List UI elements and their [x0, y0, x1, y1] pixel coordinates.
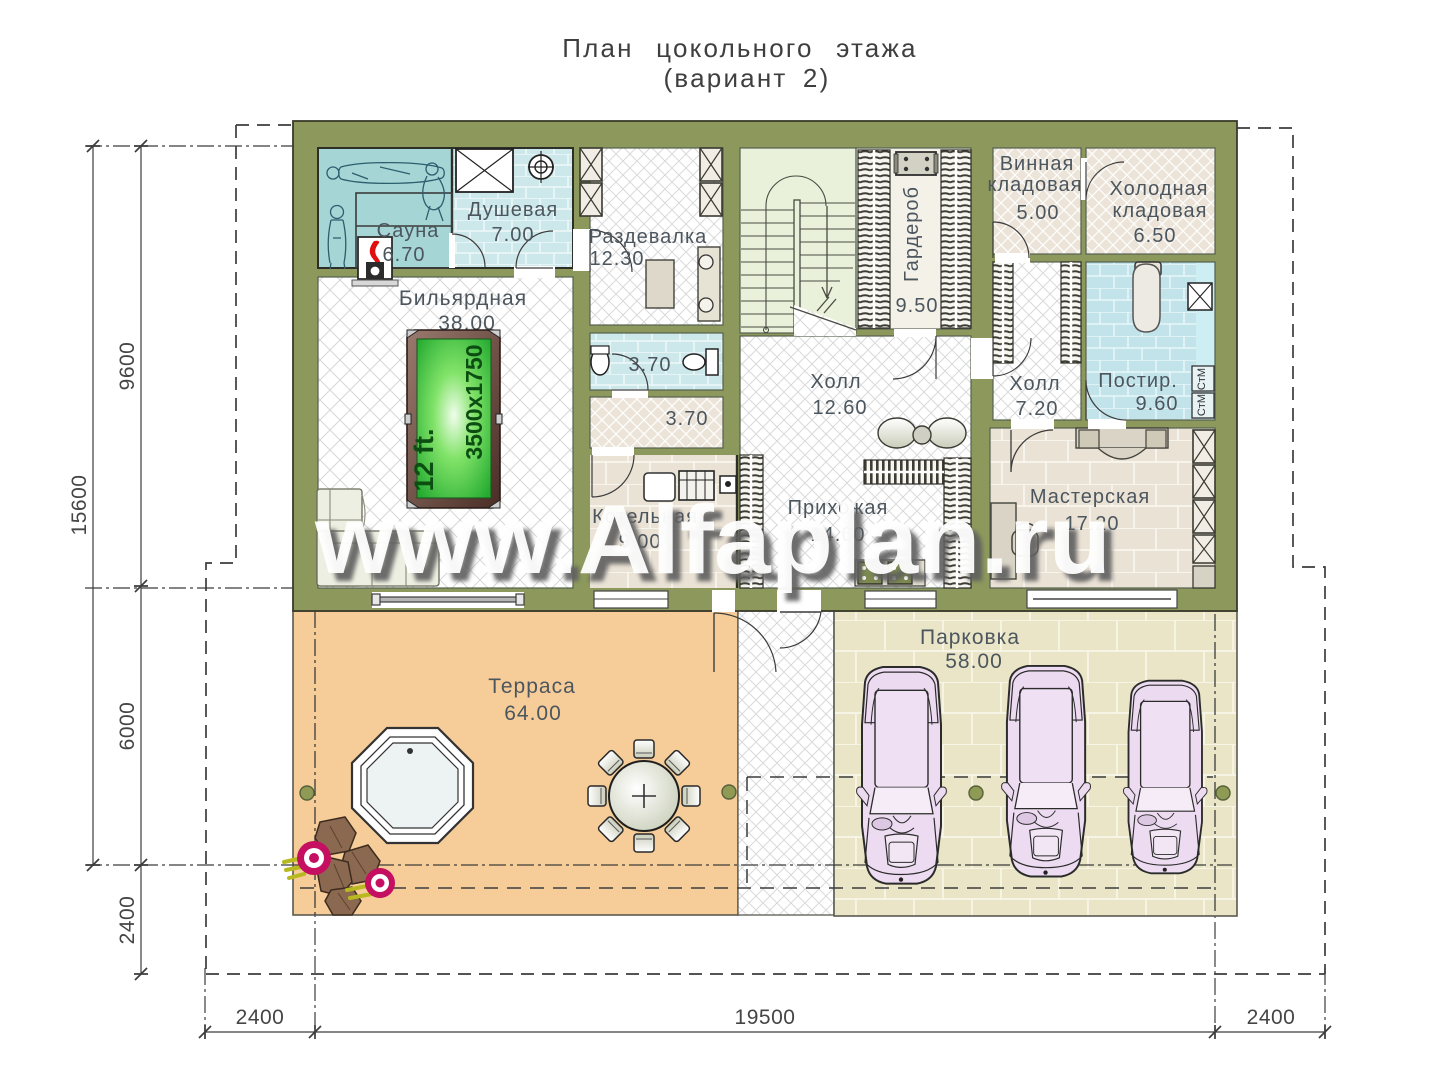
svg-text:12.60: 12.60 [812, 397, 867, 419]
svg-text:СтМ: СтМ [1196, 368, 1208, 390]
svg-text:7.00: 7.00 [492, 224, 535, 246]
svg-text:6000: 6000 [116, 702, 139, 751]
svg-text:Бильярдная: Бильярдная [399, 287, 527, 310]
svg-text:3.70: 3.70 [629, 354, 672, 376]
svg-text:9.60: 9.60 [1136, 393, 1179, 415]
svg-text:Холл: Холл [810, 371, 861, 393]
svg-text:3.70: 3.70 [666, 408, 709, 430]
svg-text:2400: 2400 [236, 1006, 285, 1029]
svg-text:6.50: 6.50 [1134, 225, 1177, 247]
svg-text:СтМ: СтМ [1196, 394, 1208, 416]
svg-text:План цокольного этажа: План цокольного этажа [562, 33, 917, 63]
svg-text:Сауна: Сауна [377, 220, 440, 242]
svg-text:9600: 9600 [116, 342, 139, 391]
svg-text:Холодная: Холодная [1109, 178, 1208, 200]
svg-text:64.00: 64.00 [504, 702, 562, 725]
svg-text:Винная: Винная [1000, 153, 1075, 175]
svg-text:Раздевалка: Раздевалка [589, 226, 708, 248]
svg-text:3500x1750: 3500x1750 [461, 344, 487, 459]
svg-text:58.00: 58.00 [945, 650, 1003, 673]
svg-text:www.Alfaplan.ru: www.Alfaplan.ru [314, 485, 1111, 594]
svg-text:9.50: 9.50 [896, 295, 939, 317]
svg-text:Душевая: Душевая [468, 199, 559, 221]
svg-text:12 ft.: 12 ft. [409, 428, 439, 491]
svg-text:Гардероб: Гардероб [901, 186, 923, 282]
svg-text:2400: 2400 [116, 896, 139, 945]
svg-text:кладовая: кладовая [1113, 200, 1208, 222]
svg-text:Терраса: Терраса [488, 675, 576, 698]
svg-text:5.00: 5.00 [1017, 202, 1060, 224]
svg-text:2400: 2400 [1247, 1006, 1296, 1029]
svg-text:(вариант 2): (вариант 2) [664, 63, 831, 93]
svg-text:Постир.: Постир. [1098, 370, 1178, 392]
svg-text:6.70: 6.70 [383, 244, 426, 266]
svg-text:12.30: 12.30 [589, 248, 644, 270]
svg-text:7.20: 7.20 [1016, 398, 1059, 420]
svg-text:Холл: Холл [1009, 373, 1060, 395]
svg-text:19500: 19500 [735, 1006, 796, 1029]
svg-text:15600: 15600 [68, 475, 91, 536]
svg-text:Парковка: Парковка [920, 626, 1020, 649]
svg-text:кладовая: кладовая [988, 174, 1083, 196]
